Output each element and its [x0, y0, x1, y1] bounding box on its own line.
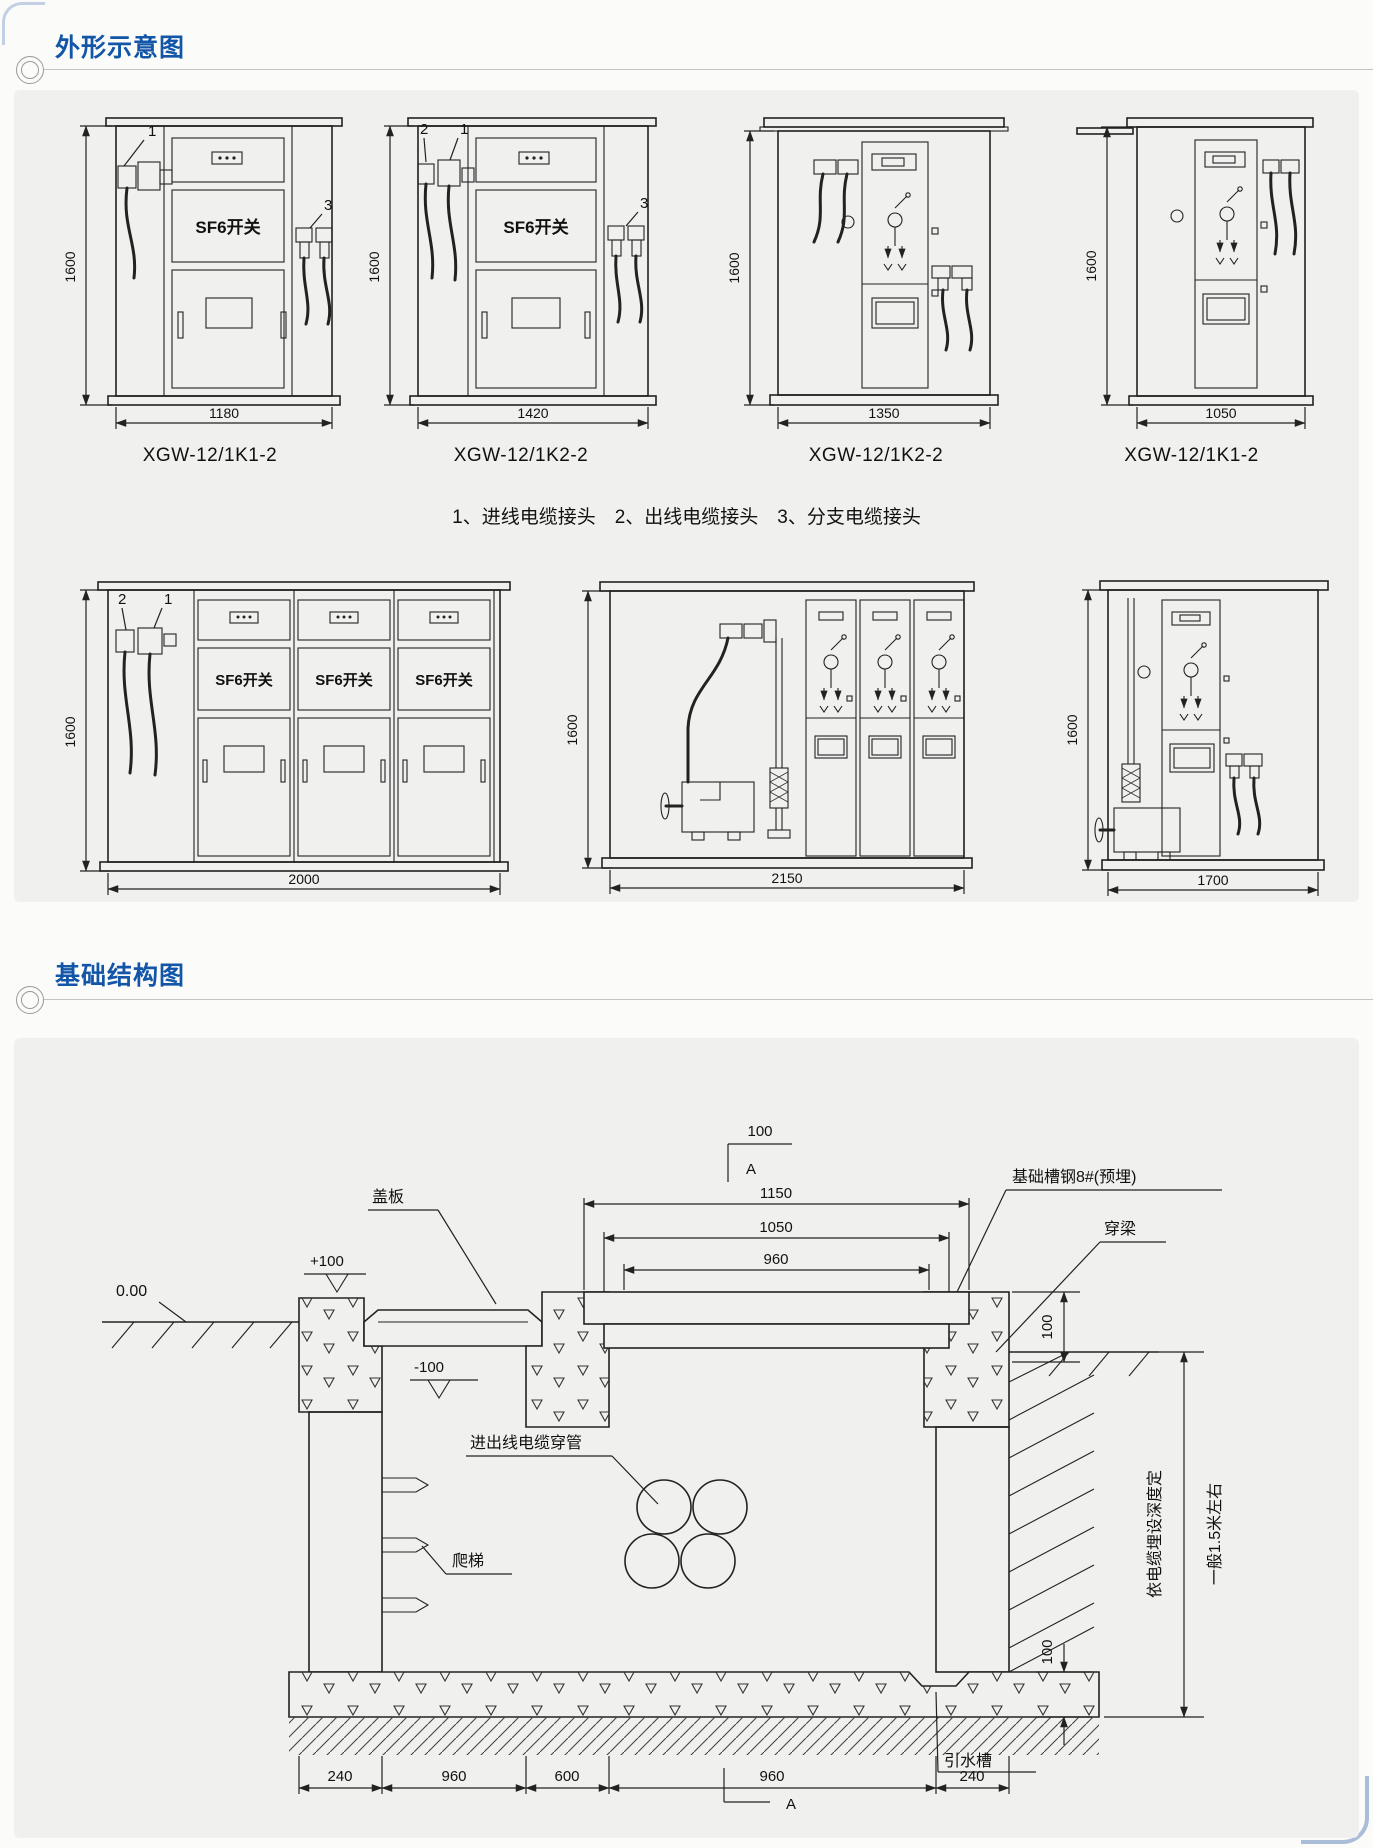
- foundation-panel: 100 A 1150 1050 960: [14, 1038, 1359, 1838]
- incoming-cable-icon: [814, 160, 858, 242]
- svg-text:960: 960: [763, 1251, 788, 1268]
- callout-3-leader: [626, 212, 638, 226]
- svg-text:1600: 1600: [726, 252, 742, 283]
- cabinet-5-svg: SF6开关 SF6开关: [66, 568, 536, 904]
- document-page: 外形示意图: [0, 0, 1373, 1848]
- callout-1: 1: [460, 121, 468, 138]
- ground-level-right: [1009, 1352, 1159, 1672]
- height-dimension: 1600: [564, 591, 612, 868]
- switch-mechanism-icon: [1216, 187, 1242, 264]
- width-dimension: 1420: [418, 405, 648, 429]
- cabinet-3-outline: [760, 118, 1008, 405]
- cover-plate: [364, 1310, 542, 1346]
- svg-text:2000: 2000: [288, 871, 319, 887]
- ground-level-left: 0.00: [102, 1283, 299, 1348]
- switch-mechanism-icon: [874, 635, 900, 712]
- svg-text:进出线电缆穿管: 进出线电缆穿管: [470, 1434, 582, 1452]
- svg-text:1420: 1420: [517, 405, 548, 421]
- callout-2-leader: [424, 138, 426, 162]
- switch-column-2: [860, 600, 910, 856]
- svg-text:240: 240: [959, 1768, 984, 1785]
- svg-text:1600: 1600: [1064, 714, 1080, 745]
- model-label: XGW-12/1K2-2: [366, 445, 676, 467]
- svg-text:1050: 1050: [759, 1219, 792, 1236]
- callout-1-leader: [154, 608, 162, 628]
- svg-text:+100: +100: [310, 1253, 344, 1270]
- switch-mechanism-icon: [884, 193, 910, 270]
- level-minus100: -100: [410, 1359, 478, 1398]
- sf6-switch-label: SF6开关: [315, 671, 373, 689]
- section-divider-line-2: [44, 999, 1373, 1000]
- switch-column: [1138, 600, 1229, 856]
- cabinet-6-svg: 1600 2150: [570, 568, 1000, 904]
- height-dimension: 1600: [62, 590, 110, 871]
- cover-plate-label: 盖板: [368, 1188, 496, 1304]
- svg-text:960: 960: [441, 1768, 466, 1785]
- ladder-label: 爬梯: [422, 1546, 512, 1574]
- sf6-switch-label: SF6开关: [195, 217, 260, 237]
- beam-label: 穿梁: [996, 1220, 1166, 1352]
- incoming-cable-icon: [138, 628, 176, 775]
- branch-cable-icon: [1226, 754, 1262, 834]
- callout-1-leader: [450, 138, 458, 160]
- svg-text:1150: 1150: [760, 1185, 792, 1202]
- switch-mechanism-icon: [928, 635, 954, 712]
- bottom-dimensions: 240 960 600 960 240: [299, 1756, 1009, 1794]
- callout-2: 2: [118, 591, 126, 608]
- bay-2: [298, 600, 390, 856]
- svg-text:A: A: [786, 1796, 796, 1813]
- cabinet-drawing-6: 1600 2150: [570, 568, 1000, 909]
- svg-text:一般1.5米左右: 一般1.5米左右: [1206, 1483, 1224, 1585]
- svg-text:A: A: [746, 1161, 756, 1178]
- sf6-switch-label: SF6开关: [503, 217, 568, 237]
- branch-cable-icon: [1263, 160, 1299, 254]
- switch-column-1: [806, 600, 856, 856]
- sf6-switch-label: SF6开关: [215, 671, 273, 689]
- width-dimension: 2150: [610, 870, 964, 894]
- svg-text:100: 100: [747, 1123, 772, 1140]
- svg-text:-100: -100: [414, 1359, 444, 1376]
- foundation-diagram-svg: 100 A 1150 1050 960: [64, 1052, 1304, 1822]
- cabinet-6-outline: [600, 582, 974, 868]
- svg-text:爬梯: 爬梯: [452, 1552, 484, 1570]
- svg-text:穿梁: 穿梁: [1104, 1220, 1136, 1238]
- level-plus100: +100: [304, 1253, 366, 1292]
- width-dimension: 1180: [116, 405, 332, 429]
- section-title-outline: 外形示意图: [55, 28, 185, 64]
- svg-text:2150: 2150: [771, 870, 802, 886]
- height-dimension: 1600: [1083, 127, 1133, 405]
- cabinet-drawing-2: SF6开关 2: [366, 102, 676, 467]
- cabinet-drawing-4: 1600 1050 XGW-12/1K1-2: [1049, 102, 1334, 467]
- cabinet-2-svg: SF6开关 2: [366, 102, 676, 438]
- width-dimension: 1350: [778, 405, 990, 429]
- bay-3: [398, 600, 490, 856]
- channel-steel-label: 基础槽钢8#(预埋): [957, 1168, 1222, 1292]
- cable-routing: [661, 620, 790, 840]
- cabinet-drawing-3: 1600 1350 XGW-12/1K2-2: [726, 102, 1026, 467]
- svg-text:盖板: 盖板: [372, 1188, 404, 1206]
- cabinet-drawing-1: SF6开关 1 3: [60, 102, 360, 467]
- cabinet-7-svg: 1600 1700: [1012, 568, 1357, 904]
- svg-text:依电缆埋设深度定: 依电缆埋设深度定: [1146, 1470, 1164, 1598]
- cabinet-4-svg: 1600 1050: [1049, 102, 1334, 438]
- cabinet-drawing-5: SF6开关 SF6开关: [66, 568, 536, 909]
- switch-mechanism-icon: [1180, 643, 1206, 720]
- svg-text:1050: 1050: [1205, 405, 1236, 421]
- height-dimension: 1600: [366, 126, 414, 405]
- outline-drawings-panel: SF6开关 1 3: [14, 90, 1359, 902]
- branch-cable-icon: [932, 266, 972, 350]
- svg-text:240: 240: [327, 1768, 352, 1785]
- section-ring-icon: [16, 56, 44, 84]
- cabinet-2-outline: [408, 118, 656, 405]
- cable-pipes: [625, 1480, 747, 1588]
- bay-1: [198, 600, 290, 856]
- svg-text:1600: 1600: [62, 251, 78, 282]
- callout-1: 1: [148, 123, 156, 140]
- svg-text:1700: 1700: [1197, 872, 1228, 888]
- svg-text:600: 600: [554, 1768, 579, 1785]
- cable-legend: 1、进线电缆接头 2、出线电缆接头 3、分支电缆接头: [14, 502, 1359, 529]
- right-pier: [924, 1292, 1009, 1672]
- section-ring-icon-2: [16, 986, 44, 1014]
- cabinet-drawing-7: 1600 1700: [1012, 568, 1357, 909]
- dim-960-top: 960: [624, 1251, 929, 1290]
- floor-slab: [289, 1672, 1099, 1755]
- svg-text:1600: 1600: [564, 714, 580, 745]
- width-dimension: 2000: [108, 871, 500, 895]
- svg-text:1600: 1600: [366, 251, 382, 282]
- svg-text:1180: 1180: [209, 405, 239, 421]
- svg-text:1600: 1600: [1083, 250, 1099, 281]
- incoming-cable-icon: [438, 160, 474, 280]
- ladder-rungs: [382, 1478, 428, 1612]
- svg-text:1350: 1350: [868, 405, 899, 421]
- width-dimension: 1700: [1108, 872, 1318, 896]
- cabinet-1-outline: [106, 118, 342, 405]
- page-corner-accent-top-left: [2, 2, 45, 45]
- branch-cable-icon: [608, 226, 644, 322]
- model-label: XGW-12/1K2-2: [726, 445, 1026, 467]
- section-marker-top: 100 A: [728, 1123, 792, 1182]
- section-divider-line: [44, 69, 1373, 70]
- callout-3: 3: [324, 197, 332, 214]
- height-dimension: 1600: [726, 131, 774, 405]
- cabinet-5-outline: [98, 582, 510, 871]
- model-label: XGW-12/1K1-2: [60, 445, 360, 467]
- cabinet-4-outline: [1077, 118, 1313, 405]
- cabinet-3-svg: 1600 1350: [726, 102, 1026, 438]
- svg-text:100: 100: [1039, 1639, 1056, 1664]
- callout-2: 2: [420, 121, 428, 138]
- cable-pipes-label: 进出线电缆穿管: [466, 1434, 658, 1504]
- level-zero-label: 0.00: [116, 1283, 147, 1300]
- switch-column-3: [914, 600, 964, 856]
- section-title-foundation: 基础结构图: [55, 956, 185, 992]
- cabinet-1-svg: SF6开关 1 3: [60, 102, 360, 438]
- svg-text:1600: 1600: [62, 716, 78, 747]
- height-dimension: 1600: [62, 126, 112, 405]
- outgoing-cable-icon: [116, 630, 134, 773]
- branch-cable-icon: [296, 228, 332, 324]
- width-dimension: 1050: [1137, 405, 1305, 429]
- callout-2-leader: [122, 608, 126, 630]
- callout-3: 3: [640, 195, 648, 212]
- outgoing-cable-icon: [418, 164, 434, 278]
- switch-mechanism-icon: [820, 635, 846, 712]
- svg-text:基础槽钢8#(预埋): 基础槽钢8#(预埋): [1012, 1168, 1136, 1186]
- svg-text:960: 960: [759, 1768, 784, 1785]
- depth-dimension: 依电缆埋设深度定 一般1.5米左右: [1104, 1352, 1224, 1717]
- sf6-switch-label: SF6开关: [415, 671, 473, 689]
- foundation-slab: [584, 1292, 969, 1348]
- model-label: XGW-12/1K1-2: [1049, 445, 1334, 467]
- callout-3-leader: [310, 214, 322, 228]
- callout-1: 1: [164, 591, 172, 608]
- svg-text:100: 100: [1039, 1314, 1056, 1339]
- left-wall: [299, 1298, 382, 1672]
